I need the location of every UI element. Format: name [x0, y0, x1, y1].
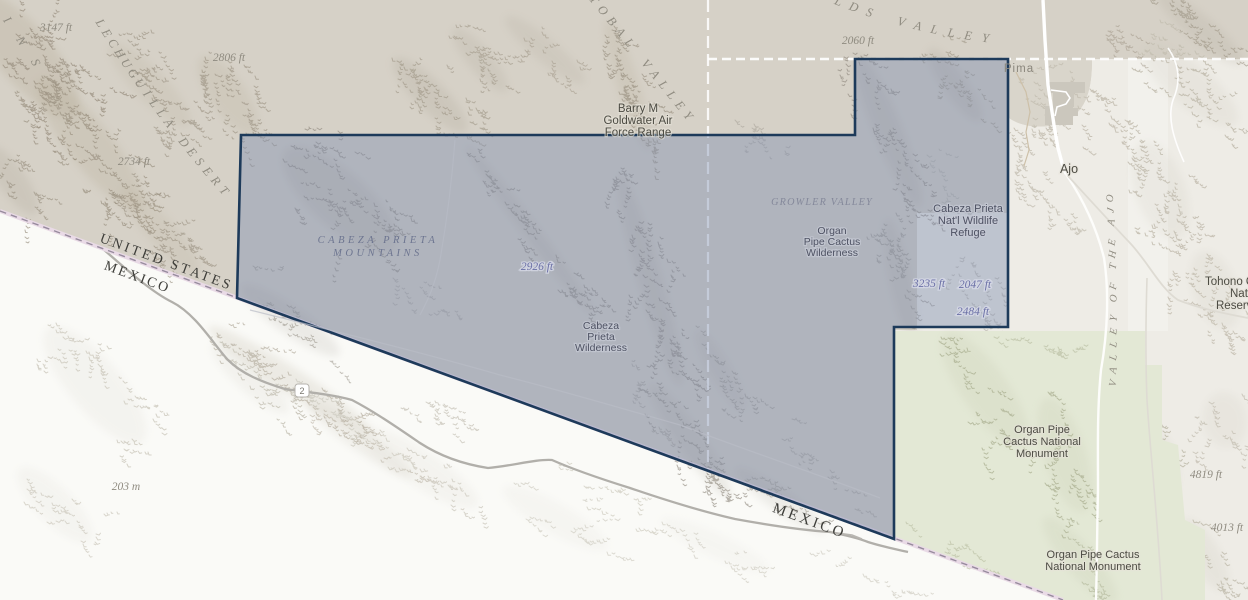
svg-text:Wilderness: Wilderness: [575, 342, 627, 354]
svg-text:MOUNTAINS: MOUNTAINS: [332, 248, 423, 259]
svg-text:Organ Pipe Cactus: Organ Pipe Cactus: [1047, 549, 1140, 561]
svg-text:Ajo: Ajo: [1060, 162, 1078, 176]
svg-text:Pima: Pima: [1004, 63, 1034, 75]
svg-text:2926 ft: 2926 ft: [521, 261, 554, 273]
svg-text:Barry M: Barry M: [618, 103, 658, 115]
svg-text:4013 ft: 4013 ft: [1211, 522, 1244, 534]
svg-text:2484 ft: 2484 ft: [957, 306, 990, 318]
svg-text:Tohono O: Tohono O: [1205, 276, 1248, 288]
svg-text:3235 ft: 3235 ft: [912, 278, 946, 290]
svg-text:Force Range: Force Range: [605, 127, 671, 139]
svg-text:Nat: Nat: [1230, 288, 1248, 300]
svg-text:2047 ft: 2047 ft: [959, 279, 992, 291]
svg-text:Reserv: Reserv: [1216, 300, 1248, 312]
svg-text:Cabeza Prieta: Cabeza Prieta: [933, 203, 1004, 215]
svg-text:National Monument: National Monument: [1045, 561, 1140, 573]
svg-text:Cactus National: Cactus National: [1003, 436, 1081, 448]
svg-text:2734 ft: 2734 ft: [118, 156, 151, 168]
svg-text:203 m: 203 m: [112, 481, 140, 493]
svg-text:CABEZA PRIETA: CABEZA PRIETA: [318, 235, 439, 246]
svg-text:2806 ft: 2806 ft: [213, 52, 246, 64]
svg-text:Goldwater Air: Goldwater Air: [603, 115, 672, 127]
svg-text:Nat'l Wildlife: Nat'l Wildlife: [938, 215, 998, 227]
svg-text:GROWLER VALLEY: GROWLER VALLEY: [771, 197, 873, 208]
svg-text:Organ Pipe: Organ Pipe: [1014, 424, 1070, 436]
svg-text:Refuge: Refuge: [950, 227, 985, 239]
svg-text:Monument: Monument: [1016, 448, 1068, 460]
svg-text:Wilderness: Wilderness: [806, 247, 858, 259]
svg-text:2: 2: [299, 386, 304, 396]
svg-text:4819 ft: 4819 ft: [1190, 469, 1223, 481]
svg-text:2060 ft: 2060 ft: [842, 35, 875, 47]
svg-text:3147 ft: 3147 ft: [39, 22, 73, 34]
